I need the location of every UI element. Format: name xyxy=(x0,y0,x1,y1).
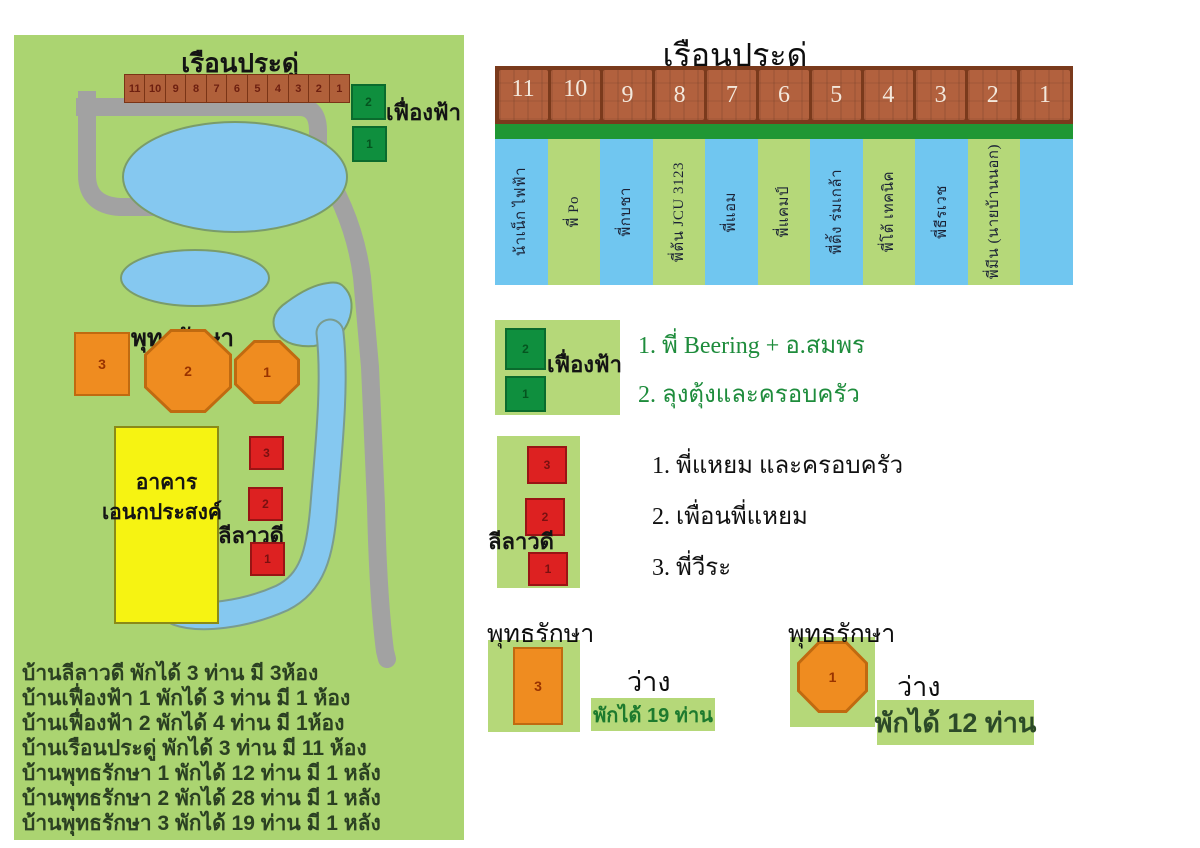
lilawadee-legend-box: 3 2 1 xyxy=(497,436,580,588)
map-pradu-cell: 11 xyxy=(125,75,145,102)
lilawadee-house-3: 3 xyxy=(527,446,567,484)
phuttharaksa1-label: พุทธรักษา xyxy=(788,614,895,654)
site-map: เรือนประดู่ 11 10 9 8 7 6 5 4 3 2 1 2 1 … xyxy=(14,35,464,840)
phuttharaksa1-capacity: พักได้ 12 ท่าน xyxy=(877,700,1034,745)
room-number: 1 xyxy=(1020,70,1069,120)
map-fueangfa-label: เฟื่องฟ้า xyxy=(386,95,461,130)
note-line: บ้านพุทธรักษา 3 พักได้ 19 ท่าน มี 1 หลัง xyxy=(22,811,462,836)
lilawadee-guest-item: 1. พี่แหยม และครอบครัว xyxy=(652,445,903,484)
room-number: 2 xyxy=(968,70,1017,120)
room-number: 7 xyxy=(707,70,756,120)
note-line: บ้านพุทธรักษา 1 พักได้ 12 ท่าน มี 1 หลัง xyxy=(22,761,462,786)
map-pradu-cell: 4 xyxy=(268,75,288,102)
map-pradu-cell: 6 xyxy=(227,75,247,102)
guest-column: พี่ Po xyxy=(548,139,601,285)
map-pradu-cell: 1 xyxy=(330,75,349,102)
walkway-strip xyxy=(495,124,1073,139)
room-number: 11 xyxy=(499,70,548,120)
map-fueangfa-house-1: 1 xyxy=(352,126,387,162)
guest-column: พี่ติ้ง ร่มเกล้า xyxy=(810,139,863,285)
map-phuttharaksa-house-3: 3 xyxy=(74,332,130,396)
room-number: 8 xyxy=(655,70,704,120)
map-pradu-cell: 7 xyxy=(207,75,227,102)
note-line: บ้านเรือนประดู่ พักได้ 3 ท่าน มี 11 ห้อง xyxy=(22,736,462,761)
fueangfa-guest-item: 1. พี่ Beering + อ.สมพร xyxy=(638,325,865,364)
map-pradu-cell: 9 xyxy=(166,75,186,102)
fueangfa-legend-box: 2 1 เฟื่องฟ้า xyxy=(495,320,620,415)
guest-column xyxy=(1020,139,1073,285)
room-number: 6 xyxy=(759,70,808,120)
room-number: 4 xyxy=(864,70,913,120)
ponds xyxy=(121,122,352,346)
fueangfa-guest-item: 2. ลุงตุ้งและครอบครัว xyxy=(638,374,860,413)
map-pradu-cell: 10 xyxy=(145,75,165,102)
map-multipurpose-building: อาคาร เอนกประสงค์ xyxy=(114,426,219,624)
guest-column: พี่กบชา xyxy=(600,139,653,285)
phuttharaksa-house-3: 3 xyxy=(513,647,563,725)
lilawadee-guest-item: 2. เพื่อนพี่แหยม xyxy=(652,496,808,535)
map-pradu-cell: 8 xyxy=(186,75,206,102)
map-fueangfa-house-2: 2 xyxy=(351,84,386,120)
guest-column: พี่ต้น JCU 3123 xyxy=(653,139,706,285)
guest-column: พี่แคมป์ xyxy=(758,139,811,285)
map-phuttharaksa-house-2: 2 xyxy=(144,329,232,413)
note-line: บ้านลีลาวดี พักได้ 3 ท่าน มี 3ห้อง xyxy=(22,661,462,686)
map-phuttharaksa-house-1: 1 xyxy=(234,340,300,404)
guest-column: พี่แอม xyxy=(705,139,758,285)
lilawadee-guest-item: 3. พี่วีระ xyxy=(652,547,731,586)
fueangfa-house-1: 1 xyxy=(505,376,546,412)
room-number: 10 xyxy=(551,70,600,120)
phuttharaksa3-capacity: พักได้ 19 ท่าน xyxy=(591,698,715,731)
guest-column: พี่ธีรเวช xyxy=(915,139,968,285)
note-line: บ้านเฟื่องฟ้า 2 พักได้ 4 ท่าน มี 1ห้อง xyxy=(22,711,462,736)
map-pradu-cell: 5 xyxy=(248,75,268,102)
room-guest-columns: น้าเน็ก ไฟฟ้า พี่ Po พี่กบชา พี่ต้น JCU … xyxy=(495,139,1073,285)
room-number: 5 xyxy=(812,70,861,120)
map-lilawadee-house-2: 2 xyxy=(248,487,283,521)
note-line: บ้านเฟื่องฟ้า 1 พักได้ 3 ท่าน มี 1 ห้อง xyxy=(22,686,462,711)
building-label-line2: เอนกประสงค์ xyxy=(102,498,217,528)
note-line: บ้านพุทธรักษา 2 พักได้ 28 ท่าน มี 1 หลัง xyxy=(22,786,462,811)
building-label-line1: อาคาร xyxy=(116,468,217,498)
guest-column: น้าเน็ก ไฟฟ้า xyxy=(495,139,548,285)
capacity-notes: บ้านลีลาวดี พักได้ 3 ท่าน มี 3ห้อง บ้านเ… xyxy=(22,661,462,836)
guest-column: พี่มีน (นายบ้านนอก) xyxy=(968,139,1021,285)
pradu-room-bar: 11 10 9 8 7 6 5 4 3 2 1 xyxy=(495,66,1073,124)
phuttharaksa3-vacant: ว่าง xyxy=(627,660,671,703)
map-lilawadee-house-1: 1 xyxy=(250,542,285,576)
map-pradu-cell: 2 xyxy=(309,75,329,102)
room-number: 3 xyxy=(916,70,965,120)
fueangfa-legend-label: เฟื่องฟ้า xyxy=(547,347,622,382)
map-pradu-room-row: 11 10 9 8 7 6 5 4 3 2 1 xyxy=(124,74,350,103)
phuttharaksa3-label: พุทธรักษา xyxy=(487,614,594,654)
fueangfa-house-2: 2 xyxy=(505,328,546,370)
guest-column: พี่โต้ เทคนิค xyxy=(863,139,916,285)
lilawadee-legend-label: ลีลาวดี xyxy=(488,524,554,559)
map-pradu-cell: 3 xyxy=(289,75,309,102)
room-number: 9 xyxy=(603,70,652,120)
map-lilawadee-house-3: 3 xyxy=(249,436,284,470)
